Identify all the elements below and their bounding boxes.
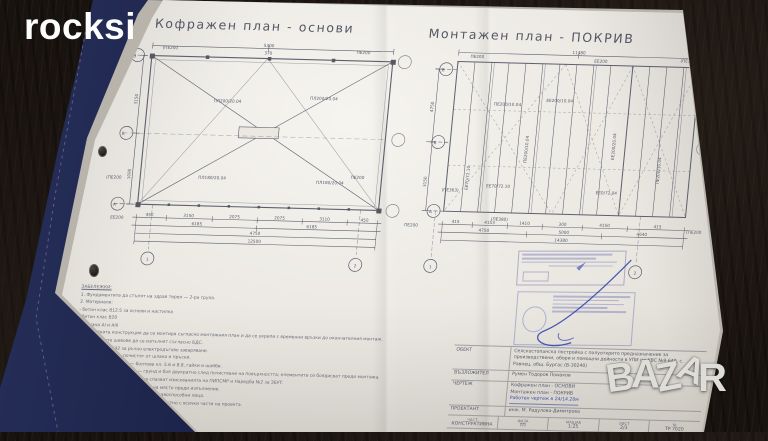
panel-label: ПЕ200/10.04	[655, 157, 663, 185]
dim-text: 4750	[429, 101, 435, 112]
dim-text: 2075	[274, 215, 285, 220]
dim-text: 5000	[558, 230, 569, 235]
dim-text: 11380	[572, 50, 586, 55]
punch-hole	[98, 146, 107, 157]
dim-text: 4750	[249, 231, 260, 236]
beam-label: ПЕ200	[356, 50, 371, 55]
dim-text: 450	[145, 212, 154, 217]
foundation-plan-drawing: В Б А 1 2 5300 370 (ПЕ200 ПЕ200 ПЛ200/20…	[95, 39, 419, 298]
beam-label: ПЕ200	[404, 222, 419, 227]
beam-label: ЕЕ200	[110, 214, 124, 219]
plan-title-foundations: Кофражен план - основи	[154, 16, 355, 36]
axis-label: Б	[433, 140, 436, 145]
panel-label: (ПЕ363)	[441, 187, 459, 192]
dim-text: 4750	[478, 228, 489, 233]
dim-text: 3150	[183, 213, 194, 218]
dim-text: 1090	[126, 168, 132, 179]
axis-label: 2	[354, 263, 357, 268]
beam-label: (ПЕ200	[686, 230, 702, 235]
rocksi-watermark: rocksi	[24, 6, 136, 48]
title-block-label: ОБЕКТ	[452, 346, 511, 370]
panel-label: ЕЕ200/10.04	[546, 98, 573, 104]
slab-label: ПЛ200/20.04	[310, 96, 338, 102]
dim-text: 5300	[264, 43, 275, 48]
title-block-label: ПРОЕКТАНТ	[448, 405, 506, 416]
axis-label: А	[113, 202, 116, 207]
dim-text: 3110	[319, 216, 330, 221]
axis-label: Б	[122, 131, 125, 136]
punch-hole	[89, 264, 99, 277]
title-block-value: Румен Тодоров Помаков	[508, 371, 573, 382]
title-block-cell: № ТР 7020	[649, 421, 700, 434]
dim-text: 415	[653, 224, 662, 229]
plan-title-roof: Монтажен план - ПОКРИВ	[428, 26, 635, 46]
beam-label: (ПЕ200	[162, 45, 178, 50]
bazar-logo-watermark: BAZAR	[605, 348, 768, 402]
title-block-value: инж. М. Радулова-Димитрова	[505, 406, 583, 418]
dim-text: 12500	[247, 239, 261, 244]
stamp-emblem	[521, 306, 547, 332]
dim-text: 3150	[133, 93, 139, 104]
dim-text: 370	[264, 50, 273, 55]
dim-text: 415	[451, 219, 460, 224]
dim-text: 6185	[306, 224, 317, 229]
axis-label: 1	[146, 257, 149, 262]
axis-label: А	[429, 209, 432, 214]
beam-label: (ПЕ200	[106, 174, 122, 179]
dim-text: 4640	[636, 232, 647, 237]
slab-label: ПЛ180/20.04	[316, 180, 344, 186]
dim-text: 4153	[484, 220, 495, 225]
panel-label: ЕЕ70/72.10	[486, 183, 511, 189]
panel-label: ЕЕ70/72.10	[464, 165, 471, 189]
axis-label: В	[441, 67, 444, 72]
photo-stage: Кофражен план - основи Монтажен план - П…	[0, 0, 768, 432]
panel-label: ПЕ200/10.04	[522, 135, 530, 163]
dim-text: 4150	[599, 223, 610, 228]
dim-text: 300	[558, 222, 567, 227]
dim-text: 6185	[191, 221, 202, 226]
title-block-cell: ЛИСТ 2/3	[599, 420, 651, 433]
bazar-letter: R	[698, 356, 723, 401]
title-block-cell: МАЩАБ 1:25	[548, 418, 600, 431]
title-block-cell: ФАЗА ТП	[497, 417, 549, 430]
title-block-drawing-names: Кофражен план - ОСНОВИМонтажен план - ПО…	[506, 382, 583, 408]
dim-text: 2075	[229, 214, 240, 219]
title-block-label: ЧЕРТЕЖ	[449, 380, 508, 405]
title-block-label: ВЪЗЛОЖИТЕЛ	[451, 369, 509, 380]
dim-text: 1410	[519, 221, 530, 226]
dim-text: 14380	[554, 238, 568, 243]
panel-label: ЕЕ200/20.04	[610, 133, 618, 160]
slab-label: ПЛ180/20.04	[198, 175, 226, 181]
approval-stamp-small	[516, 251, 627, 286]
slab-label: ПЛ200/20.04	[213, 98, 241, 104]
bazar-letter: B	[603, 354, 634, 402]
axis-label: 1	[429, 264, 432, 269]
panel-label: ПЕ200/10.04	[494, 101, 522, 107]
title-block-cell: ЧАСТ КОНСТРУКТИВНА	[447, 416, 499, 429]
dim-text: 3150	[422, 176, 428, 187]
beam-label: ПЕ200	[470, 54, 485, 59]
beam-label: ПЕ200	[350, 175, 365, 180]
company-stamp-blue	[513, 291, 635, 346]
beam-label: ЕЕ200	[594, 59, 608, 64]
axis-label: 2	[633, 271, 636, 276]
panel-label: ЕЕ0/72.04	[595, 190, 617, 196]
dim-text: 450	[360, 218, 369, 223]
